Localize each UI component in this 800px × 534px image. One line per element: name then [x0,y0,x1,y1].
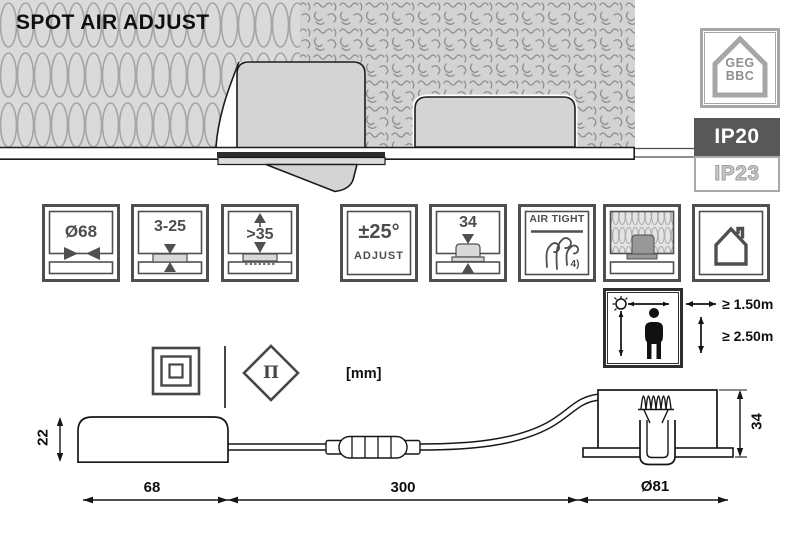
tilt-angle-label: ±25° [343,221,415,244]
cutout-diameter-icon [45,207,117,279]
cable-length-dimension: 300 [381,479,425,496]
vertical-clearance-arrow [619,311,624,356]
horizontal-clearance-value: ≥ 1.50m [722,296,773,312]
head-diameter-dimension: Ø81 [631,478,679,495]
horizontal-clearance-arrow [628,302,669,307]
min-recess-depth-label: >35 [224,226,296,244]
ip20-badge: IP20 [694,118,780,156]
spotlight-head [583,390,733,465]
fixture-height-label: 34 [432,214,504,232]
clearance-panel [603,288,683,368]
lamp-bulb [616,299,626,309]
driver-length-dimension: 68 [132,479,172,496]
adjust-label: ADJUST [343,250,415,262]
bbc-label: BBC [703,69,777,83]
product-dimension-drawing [0,380,800,534]
datasheet-canvas: SPOT AIR ADJUST GEG BBC IP20 IP23 Ø68 3-… [0,0,800,534]
ip23-badge: IP23 [694,156,780,192]
driver-box [78,417,228,462]
cutout-diameter-label: Ø68 [45,222,117,242]
recessed-fixture-housing-left [237,62,365,160]
ip-callout-lines [635,149,694,158]
feature-icon-cutout-diameter: Ø68 [42,204,120,282]
geg-bbc-house-badge: GEG BBC [700,28,780,108]
vertical-clearance-value: ≥ 2.50m [722,328,773,344]
head-height-dimension: 34 [749,407,766,437]
lamp-person-clearance-icon [609,294,677,362]
feature-icon-min-recess-depth: >35 [221,204,299,282]
cable [226,397,600,447]
recessed-fixture-housing-right [415,97,575,147]
horizontal-distance-arrow-icon [684,298,718,310]
cable-connector [326,437,420,459]
feature-icon-tilt-adjust: ±25° ADJUST [340,204,418,282]
feature-icon-indoor-use [692,204,770,282]
driver-height-dimension: 22 [35,423,52,453]
feature-icon-ceiling-thickness: 3-25 [131,204,209,282]
fixture-trim-and-tilted-head [217,152,385,192]
feature-icon-airtight: AIR TIGHT 4) [518,204,596,282]
feature-icon-insulation-coverable [603,204,681,282]
page-title: SPOT AIR ADJUST [16,11,209,35]
insulation-coverable-icon [606,207,678,279]
indoor-house-icon [695,207,767,279]
airtight-label: AIR TIGHT [521,213,593,225]
person-silhouette [645,308,663,359]
vertical-distance-arrow-icon [695,315,707,355]
geg-label: GEG [703,56,777,70]
feature-icon-fixture-height: 34 [429,204,507,282]
ceiling-thickness-label: 3-25 [134,218,206,236]
airtight-footnote: 4) [563,259,587,270]
